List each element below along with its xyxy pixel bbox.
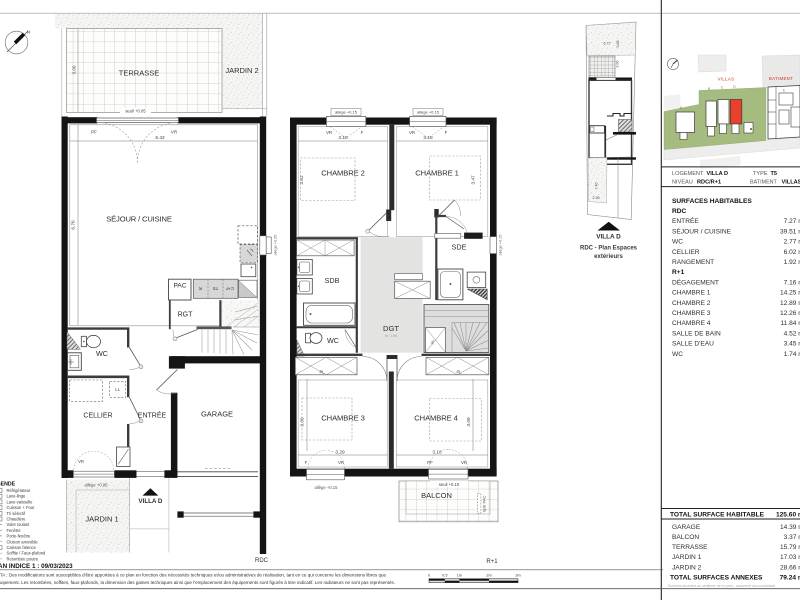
- svg-text:TOTAL SURFACE HABITABLE: TOTAL SURFACE HABITABLE: [670, 511, 765, 518]
- svg-text:12.26 m²: 12.26 m²: [780, 310, 800, 317]
- svg-text:SALLE D'EAU: SALLE D'EAU: [672, 341, 714, 348]
- svg-text:Tri sélectif: Tri sélectif: [7, 511, 26, 516]
- svg-text:6.76: 6.76: [71, 220, 77, 230]
- svg-text:NOTA : Des modifications sont: NOTA : Des modifications sont susceptibl…: [0, 573, 387, 578]
- svg-text:BALCON: BALCON: [421, 491, 452, 500]
- svg-text:SÉJOUR / CUISINE: SÉJOUR / CUISINE: [672, 226, 732, 235]
- svg-text:SDB: SDB: [325, 276, 340, 285]
- svg-text:Soffite / Faux-plafond: Soffite / Faux-plafond: [7, 551, 47, 556]
- svg-text:VR: VR: [461, 460, 467, 465]
- svg-text:SURFACES HABITABLES: SURFACES HABITABLES: [672, 198, 752, 205]
- svg-text:1m: 1m: [457, 574, 462, 578]
- svg-text:0.5: 0.5: [442, 574, 447, 578]
- svg-text:TERRASSE: TERRASSE: [119, 69, 159, 78]
- svg-text:CHAMBRE 4: CHAMBRE 4: [414, 414, 457, 423]
- svg-text:JARDIN 2: JARDIN 2: [672, 564, 702, 571]
- svg-text:3.00: 3.00: [616, 61, 620, 68]
- svg-text:PF: PF: [91, 130, 97, 135]
- svg-text:0: 0: [428, 574, 430, 578]
- svg-text:CHAMBRE 1: CHAMBRE 1: [672, 290, 711, 297]
- svg-text:VILLAS: VILLAS: [718, 77, 735, 82]
- svg-text:Fenêtre: Fenêtre: [7, 528, 22, 533]
- svg-text:7.27 m²: 7.27 m²: [784, 218, 800, 225]
- svg-text:allège +0.15: allège +0.15: [315, 485, 339, 490]
- svg-text:Lave-vaisselle: Lave-vaisselle: [7, 499, 34, 504]
- svg-text:TYPE: TYPE: [753, 171, 768, 177]
- svg-text:SALLE DE BAIN: SALLE DE BAIN: [672, 330, 721, 337]
- svg-text:Cuisson + Four: Cuisson + Four: [7, 505, 36, 510]
- svg-text:3.18: 3.18: [432, 450, 442, 456]
- svg-text:17.03 m²: 17.03 m²: [780, 554, 800, 561]
- svg-text:ENTRÉE: ENTRÉE: [138, 411, 167, 420]
- svg-text:28.66 m²: 28.66 m²: [780, 564, 800, 571]
- svg-text:2.39: 2.39: [593, 196, 600, 200]
- svg-text:12.89 m²: 12.89 m²: [780, 300, 800, 307]
- svg-text:seuil +0.05: seuil +0.05: [125, 109, 146, 114]
- svg-text:SDE: SDE: [452, 243, 467, 252]
- svg-text:T5: T5: [771, 171, 778, 177]
- svg-text:Porte-fenêtre: Porte-fenêtre: [7, 534, 32, 539]
- svg-text:3m: 3m: [515, 574, 520, 578]
- svg-text:Chaudière: Chaudière: [7, 517, 27, 522]
- svg-text:TS: TS: [213, 286, 219, 291]
- svg-text:14.25 m²: 14.25 m²: [780, 290, 800, 297]
- svg-text:3.18: 3.18: [338, 135, 348, 141]
- svg-text:Retombée poutre: Retombée poutre: [7, 556, 39, 561]
- svg-text:C+F: C+F: [226, 286, 234, 291]
- svg-text:N: N: [27, 30, 30, 35]
- svg-text:4.52 m²: 4.52 m²: [784, 330, 800, 337]
- svg-text:allège +0.15: allège +0.15: [499, 235, 503, 256]
- svg-text:DÉGAGEMENT: DÉGAGEMENT: [672, 277, 719, 286]
- svg-text:PL: PL: [319, 370, 325, 375]
- svg-text:RDC - Plan Espaces: RDC - Plan Espaces: [580, 246, 638, 252]
- svg-text:VR: VR: [78, 459, 84, 464]
- svg-text:l'équipement. Les retombées, s: l'équipement. Les retombées, soffites, f…: [0, 580, 395, 585]
- svg-text:Volet roulant: Volet roulant: [7, 522, 31, 527]
- svg-text:3.62: 3.62: [299, 175, 305, 185]
- svg-text:3.09: 3.09: [466, 417, 472, 427]
- svg-text:seuil +0.10: seuil +0.10: [439, 482, 460, 487]
- svg-text:allège +0.95: allège +0.95: [85, 482, 109, 487]
- svg-text:CHAMBRE 3: CHAMBRE 3: [321, 414, 364, 423]
- svg-text:Caisson faïence: Caisson faïence: [7, 545, 37, 550]
- svg-text:VR: VR: [338, 460, 344, 465]
- svg-text:79.24 m²: 79.24 m²: [780, 575, 800, 582]
- svg-text:allège +0.15: allège +0.15: [417, 110, 440, 115]
- svg-text:CELLIER: CELLIER: [672, 249, 700, 256]
- svg-text:NIVEAU: NIVEAU: [672, 180, 693, 186]
- svg-text:CHAMBRE 1: CHAMBRE 1: [415, 169, 458, 178]
- svg-text:CHAMBRE 2: CHAMBRE 2: [672, 300, 711, 307]
- svg-text:14.39 m²: 14.39 m²: [780, 524, 800, 531]
- svg-text:PL: PL: [456, 370, 462, 375]
- svg-text:TOTAL SURFACES ANNEXES: TOTAL SURFACES ANNEXES: [670, 575, 763, 582]
- svg-text:1.92 m²: 1.92 m²: [784, 259, 800, 266]
- svg-text:Cloison amovible: Cloison amovible: [7, 539, 39, 544]
- svg-text:R: R: [199, 286, 202, 291]
- svg-text:RDC: RDC: [255, 558, 269, 564]
- svg-text:VR: VR: [171, 130, 178, 135]
- svg-text:7.16 m²: 7.16 m²: [784, 279, 800, 286]
- svg-text:VR: VR: [409, 130, 415, 135]
- svg-text:15.79 m²: 15.79 m²: [780, 544, 800, 551]
- svg-text:CHAMBRE 3: CHAMBRE 3: [672, 310, 711, 317]
- svg-text:allège +0.15: allège +0.15: [335, 110, 358, 115]
- svg-text:BATIMENT: BATIMENT: [769, 76, 793, 81]
- svg-text:Split PAC: Split PAC: [482, 495, 487, 512]
- svg-text:39.51 m²: 39.51 m²: [780, 228, 800, 235]
- svg-text:SÉJOUR / CUISINE: SÉJOUR / CUISINE: [106, 215, 172, 224]
- svg-text:7.40: 7.40: [595, 183, 599, 190]
- svg-text:PL: PL: [431, 340, 435, 345]
- svg-text:PAC: PAC: [174, 283, 187, 290]
- svg-text:125.60 m²: 125.60 m²: [776, 511, 800, 518]
- svg-text:3.47: 3.47: [471, 175, 477, 185]
- svg-text:TERRASSE: TERRASSE: [672, 544, 708, 551]
- svg-text:PF: PF: [427, 460, 433, 465]
- svg-text:3.00: 3.00: [72, 65, 77, 74]
- svg-text:R+1: R+1: [672, 269, 685, 276]
- svg-text:CHAMBRE 2: CHAMBRE 2: [321, 169, 364, 178]
- svg-text:BALCON: BALCON: [672, 534, 699, 541]
- svg-text:VR: VR: [326, 130, 332, 135]
- svg-text:allège +0.95: allège +0.95: [274, 235, 278, 256]
- svg-text:DGT: DGT: [383, 324, 399, 333]
- svg-text:3.09: 3.09: [300, 417, 306, 427]
- svg-text:6.42: 6.42: [155, 135, 165, 141]
- svg-text:GARAGE: GARAGE: [672, 524, 701, 531]
- svg-text:VILLA D: VILLA D: [138, 498, 162, 505]
- svg-text:3.45 m²: 3.45 m²: [784, 341, 800, 348]
- svg-text:3.29: 3.29: [335, 450, 345, 456]
- svg-text:Lave-linge: Lave-linge: [7, 494, 27, 499]
- svg-text:GARAGE: GARAGE: [201, 410, 233, 419]
- svg-text:CHAMBRE 4: CHAMBRE 4: [672, 320, 711, 327]
- svg-text:WC: WC: [672, 239, 683, 246]
- svg-text:CELLIER: CELLIER: [83, 413, 112, 420]
- svg-text:BATIMENT: BATIMENT: [750, 180, 778, 186]
- svg-text:6.77: 6.77: [604, 42, 611, 46]
- svg-text:VILLAS: VILLAS: [782, 180, 800, 186]
- svg-text:Réfrigérateur: Réfrigérateur: [7, 488, 32, 493]
- svg-text:1.74 m²: 1.74 m²: [784, 351, 800, 358]
- svg-text:WC: WC: [96, 349, 108, 358]
- svg-text:JARDIN 1: JARDIN 1: [85, 515, 118, 524]
- svg-text:2.77 m²: 2.77 m²: [784, 239, 800, 246]
- svg-text:RDC: RDC: [672, 208, 687, 215]
- svg-text:PLAN INDICE 1 : 09/03/2023: PLAN INDICE 1 : 09/03/2023: [0, 563, 73, 570]
- svg-text:VILLA D: VILLA D: [596, 234, 621, 241]
- svg-text:RGT: RGT: [178, 312, 194, 319]
- svg-text:RANGEMENT: RANGEMENT: [672, 259, 714, 266]
- svg-text:JARDIN 2: JARDIN 2: [225, 66, 258, 75]
- svg-text:WC: WC: [672, 351, 683, 358]
- svg-text:3.37 m²: 3.37 m²: [784, 534, 800, 541]
- svg-text:VILLA D: VILLA D: [707, 171, 729, 177]
- svg-text:R+1: R+1: [486, 559, 498, 565]
- svg-text:JARDIN 1: JARDIN 1: [672, 554, 702, 561]
- svg-text:F: F: [305, 460, 308, 465]
- svg-text:Surfaces arrondies au centième: Surfaces arrondies au centième de m² prè…: [668, 584, 775, 588]
- svg-text:11.84 m²: 11.84 m²: [780, 320, 800, 327]
- svg-text:WC: WC: [327, 336, 339, 345]
- svg-text:3.06: 3.06: [616, 41, 620, 48]
- svg-text:F: F: [445, 130, 448, 135]
- svg-text:ENTRÉE: ENTRÉE: [672, 216, 699, 225]
- svg-text:F: F: [361, 130, 364, 135]
- svg-text:LOGEMENT: LOGEMENT: [672, 171, 704, 177]
- svg-text:LÉGENDE: LÉGENDE: [0, 480, 16, 488]
- svg-text:6.02 m²: 6.02 m²: [784, 249, 800, 256]
- svg-text:ht : 2.50: ht : 2.50: [385, 334, 397, 338]
- svg-text:LL: LL: [115, 387, 120, 392]
- svg-text:2m: 2m: [486, 574, 491, 578]
- svg-text:extérieurs: extérieurs: [594, 254, 623, 260]
- svg-text:RDC/R+1: RDC/R+1: [697, 180, 721, 186]
